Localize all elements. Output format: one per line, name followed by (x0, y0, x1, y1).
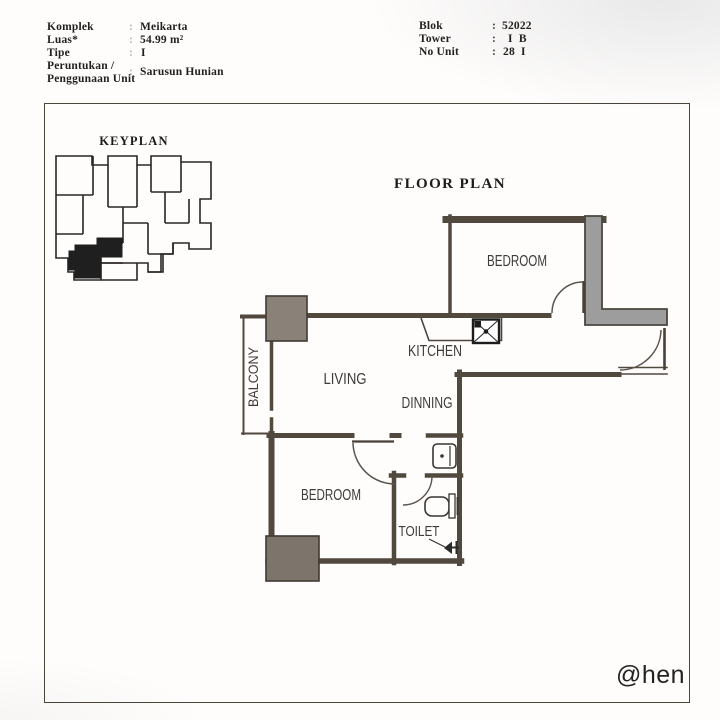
room-label-living: LIVING (324, 371, 367, 388)
column-top (266, 296, 307, 341)
room-label-bedroom-top: BEDROOM (487, 253, 547, 270)
entrance-door-swing (620, 330, 661, 370)
room-label-toilet: TOILET (399, 524, 440, 540)
bedroom-bottom-door-swing (353, 443, 395, 484)
toilet-bowl-icon (425, 494, 458, 518)
room-label-dinning: DINNING (402, 395, 453, 412)
room-label-balcony: BALCONY (246, 347, 261, 407)
drain-icon (429, 539, 459, 554)
floorplan-drawing: BEDROOM KITCHEN LIVING DINNING BEDROOM T… (0, 0, 720, 720)
stove-icon (473, 320, 499, 344)
bedroom-top-door-swing (552, 282, 583, 313)
scanned-floor-plan-page: Komplek : Meikarta Luas* : 54.99 m² Tipe… (0, 0, 720, 720)
watermark: @hen (616, 661, 685, 690)
room-label-kitchen: KITCHEN (408, 343, 462, 360)
column-bottom (266, 536, 319, 581)
room-label-bedroom-bottom: BEDROOM (301, 487, 361, 504)
washbasin-icon (433, 444, 456, 468)
thick-wall (585, 216, 667, 325)
